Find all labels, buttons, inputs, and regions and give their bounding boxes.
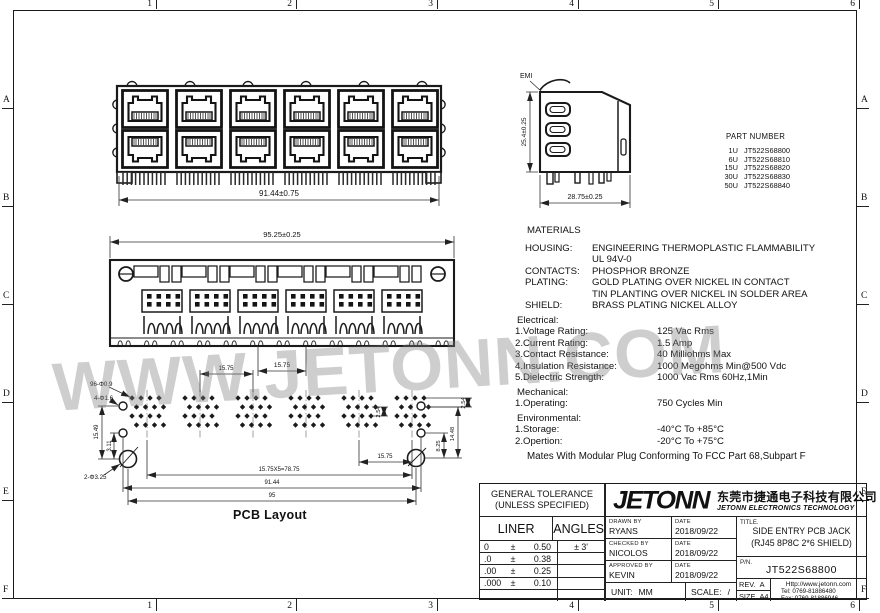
- frame-zone-number: 3: [419, 601, 433, 612]
- rj45-port: [177, 91, 222, 128]
- frame-zone-letter: E: [3, 487, 13, 498]
- spec-row: 1.Storage: -40°C To +85°C: [510, 424, 870, 436]
- scale-value: /: [728, 587, 730, 597]
- angle-tolerance-value: [557, 553, 604, 564]
- spec-label: SHIELD:: [525, 300, 592, 312]
- pcb-dim-14-48: 14.48: [450, 427, 456, 442]
- company-tel: Tel: 0769-81886480: [771, 588, 866, 595]
- frame-zone-number: 6: [841, 601, 855, 612]
- part-number-cell: P/N. JT522S68800: [736, 557, 866, 579]
- pcb-holes-mid-label: 4-Φ1.6: [94, 395, 114, 402]
- tolerance-row: .00 ± 0.25: [480, 564, 604, 576]
- spec-value: 750 Cycles Min: [657, 398, 723, 410]
- signoff-row: DRAWN BY RYANS DATE 2018/09/22: [606, 517, 736, 539]
- company-name-english: JETONN ELECTRONICS TECHNOLOGY: [717, 505, 877, 512]
- tolerance-rows: 0 ± 0.50 ± 3' .0 ± 0.38 .00 ± 0.25: [480, 540, 605, 601]
- part-number-value: JT522S68840: [744, 182, 790, 191]
- signoff-date-cell: DATE 2018/09/22: [672, 539, 736, 560]
- mates-note: Mates With Modular Plug Conforming To FC…: [510, 451, 870, 463]
- tolerance-value: 0.10: [520, 578, 557, 588]
- spec-row: UL 94V-0: [510, 254, 870, 266]
- revision-cell: REV. A: [736, 579, 770, 590]
- frame-zone-number: 6: [841, 0, 855, 10]
- pcb-dim-15-75: 15.75: [377, 454, 393, 460]
- spec-row: Electrical:: [510, 315, 870, 327]
- spec-label: [525, 254, 592, 266]
- plus-minus-symbol: ±: [506, 566, 520, 576]
- pcb-holes-small-label: 96-Φ0.9: [90, 381, 113, 388]
- tolerance-digits: .00: [480, 566, 506, 576]
- rj45-port: [231, 91, 276, 128]
- size-cell: SIZE A4: [736, 590, 770, 601]
- rj45-port: [339, 131, 384, 168]
- tolerance-value: 0.25: [520, 566, 557, 576]
- pcb-hole-dots: [129, 395, 431, 427]
- spec-row: 1.Operating: 750 Cycles Min: [510, 398, 870, 410]
- materials-spec-block: MATERIALS HOUSING: ENGINEERING THERMOPLA…: [510, 225, 870, 463]
- liner-header: LINER: [480, 517, 553, 540]
- signoff-name: KEVIN: [609, 570, 668, 580]
- pcb-layout-drawing: 96-Φ0.9 4-Φ1.6 2-Φ3.25 15.49 3.11 2.54 2…: [76, 346, 494, 532]
- drawing-sheet: 123456 123456 ABCDEF ABCDEF: [0, 0, 880, 613]
- spec-label: 2.Opertion:: [515, 436, 657, 448]
- tolerance-header: GENERAL TOLERANCE (UNLESS SPECIFIED): [480, 484, 605, 517]
- pcb-dim-2-54-mid: 2.54: [376, 406, 382, 418]
- frame-zone-letter: A: [861, 95, 871, 106]
- date-label: DATE: [675, 519, 733, 525]
- tolerance-row: [480, 589, 604, 601]
- tolerance-digits: .000: [480, 578, 506, 588]
- pcb-holes-big-label: 2-Φ3.25: [84, 474, 107, 481]
- spec-label: 1.Operating:: [515, 398, 657, 410]
- spec-label: Environmental:: [517, 413, 581, 425]
- signoff-role-label: DRAWN BY: [609, 519, 668, 525]
- spec-label: PLATING:: [525, 277, 592, 289]
- rj45-port: [285, 131, 330, 168]
- angle-tolerance-value: [557, 590, 604, 601]
- rev-label: REV.: [739, 580, 756, 589]
- spec-row: TIN PLANTING OVER NICKEL IN SOLDER AREA: [510, 289, 870, 301]
- frame-zone-number: 2: [278, 0, 292, 10]
- tolerance-digits: 0: [480, 542, 506, 552]
- drawing-title-line1: SIDE ENTRY PCB JACK: [737, 526, 866, 536]
- frame-zone-number: 3: [419, 0, 433, 10]
- spec-value: 125 Vac Rms: [657, 326, 714, 338]
- title-label: TITLE.: [740, 519, 759, 526]
- spec-label: [525, 289, 592, 301]
- plating-code: 50U: [712, 182, 738, 191]
- pcb-dim-15-49: 15.49: [94, 424, 100, 440]
- signoff-name-cell: CHECKED BY NICOLOS: [606, 539, 672, 560]
- spec-label: 1.Storage:: [515, 424, 657, 436]
- frame-zone-number: 5: [700, 601, 714, 612]
- spec-row: 3.Contact Resistance: 40 Milliohms Max: [510, 349, 870, 361]
- signoff-rows: DRAWN BY RYANS DATE 2018/09/22 CHECKED B…: [605, 517, 736, 583]
- scale-cell: SCALE: /: [686, 583, 736, 601]
- company-logo-row: JETONN 东莞市捷通电子科技有限公司 JETONN ELECTRONICS …: [605, 484, 866, 517]
- spec-label: 2.Current Rating:: [515, 338, 657, 350]
- title-block: GENERAL TOLERANCE (UNLESS SPECIFIED) LIN…: [479, 483, 867, 600]
- pcb-layout-caption: PCB Layout: [233, 508, 307, 522]
- spec-value: BRASS PLATING NICKEL ALLOY: [592, 300, 738, 312]
- pcb-dim-pitch-total: 15.75X5=78.75: [259, 467, 301, 473]
- frame-zone-letter: A: [3, 95, 13, 106]
- spec-value: GOLD PLATING OVER NICKEL IN CONTACT: [592, 277, 790, 289]
- part-number-table: PART NUMBER 1U JT522S68800 6U JT522S6881…: [712, 133, 790, 191]
- pcb-dim-2-54-right: 2.54: [461, 397, 467, 409]
- plus-minus-symbol: ±: [506, 578, 520, 588]
- spec-label: 3.Contact Resistance:: [515, 349, 657, 361]
- spec-label: CONTACTS:: [525, 266, 592, 278]
- signoff-date-cell: DATE 2018/09/22: [672, 561, 736, 582]
- frame-zone-number: 4: [560, 0, 574, 10]
- signoff-date: 2018/09/22: [675, 526, 733, 536]
- part-number-row: 50U JT522S68840: [712, 182, 790, 191]
- front-width-dim-label: 91.44±0.75: [259, 189, 300, 198]
- drawing-title-line2: (RJ45 8P8C 2*6 SHIELD): [737, 538, 866, 548]
- side-view-body: [540, 80, 630, 184]
- spec-row: Environmental:: [510, 413, 870, 425]
- date-label: DATE: [675, 563, 733, 569]
- spec-row: Mechanical:: [510, 387, 870, 399]
- spec-label: MATERIALS: [527, 225, 581, 237]
- tolerance-row: .0 ± 0.38: [480, 552, 604, 564]
- spec-value: PHOSPHOR BRONZE: [592, 266, 690, 278]
- front-view-drawing: 91.44±0.75: [96, 56, 462, 220]
- signoff-date-cell: DATE 2018/09/22: [672, 517, 736, 538]
- side-height-dim-label: 25.4±0.25: [521, 117, 528, 146]
- spec-row: PLATING: GOLD PLATING OVER NICKEL IN CON…: [510, 277, 870, 289]
- rear-view-body: [110, 260, 454, 346]
- tolerance-title-line2: (UNLESS SPECIFIED): [495, 500, 589, 511]
- tolerance-row: 0 ± 0.50 ± 3': [480, 540, 604, 552]
- part-number-list: 1U JT522S68800 6U JT522S68810 15U JT522S…: [712, 147, 790, 191]
- frame-zone-letter: B: [861, 193, 871, 204]
- rj45-port: [177, 131, 222, 168]
- spec-label: Mechanical:: [517, 387, 568, 399]
- rj45-port: [123, 91, 168, 128]
- signoff-row: CHECKED BY NICOLOS DATE 2018/09/22: [606, 539, 736, 561]
- rj45-port: [231, 131, 276, 168]
- signoff-name: NICOLOS: [609, 548, 668, 558]
- frame-zone-number: 1: [138, 601, 152, 612]
- spec-row: 5.Dielectric Strength: 1000 Vac Rms 60Hz…: [510, 372, 870, 384]
- side-depth-dim-label: 28.75±0.25: [568, 194, 603, 201]
- pcb-dim-95: 95: [269, 493, 276, 499]
- spec-row: 1.Voltage Rating: 125 Vac Rms: [510, 326, 870, 338]
- emi-label: EMI: [520, 73, 533, 80]
- angle-tolerance-value: ± 3': [557, 541, 604, 552]
- frame-zone-number: 4: [560, 601, 574, 612]
- tolerance-value: 0.38: [520, 554, 557, 564]
- spec-row: MATERIALS: [510, 225, 870, 237]
- frame-zone-number: 2: [278, 601, 292, 612]
- spec-label: HOUSING:: [525, 243, 592, 255]
- spec-value: 40 Milliohms Max: [657, 349, 731, 361]
- company-name-chinese: 东莞市捷通电子科技有限公司: [717, 488, 877, 505]
- pn-value: JT522S68800: [737, 564, 866, 576]
- spec-row: 2.Current Rating: 1.5 Amp: [510, 338, 870, 350]
- frame-zone-letter: F: [3, 585, 13, 596]
- tolerance-title-line1: GENERAL TOLERANCE: [491, 489, 593, 500]
- tolerance-value: 0.50: [520, 542, 557, 552]
- side-view-drawing: EMI 25.4±0.25 28.75±0.25: [490, 53, 702, 221]
- spec-row: 2.Opertion: -20°C To +75°C: [510, 436, 870, 448]
- spec-label: 1.Voltage Rating:: [515, 326, 657, 338]
- signoff-role-label: CHECKED BY: [609, 541, 668, 547]
- spec-value: 1000 Vac Rms 60Hz,1Min: [657, 372, 768, 384]
- contact-cell: Http://www.jetonn.com Tel: 0769-81886480…: [770, 579, 866, 601]
- signoff-name: RYANS: [609, 526, 668, 536]
- spec-row: CONTACTS: PHOSPHOR BRONZE: [510, 266, 870, 278]
- unit-cell: UNIT: MM: [606, 583, 686, 601]
- pcb-dim-8-25: 8.25: [436, 440, 442, 451]
- angle-tolerance-value: [557, 578, 604, 589]
- spec-row: HOUSING: ENGINEERING THERMOPLASTIC FLAMM…: [510, 243, 870, 255]
- pcb-dim-3-11: 3.11: [107, 440, 113, 452]
- spec-value: 1000 Megohms Min@500 Vdc: [657, 361, 786, 373]
- tolerance-digits: .0: [480, 554, 506, 564]
- plus-minus-symbol: ±: [506, 542, 520, 552]
- spec-value: UL 94V-0: [592, 254, 632, 266]
- spec-row: 4.Insulation Resistance: 1000 Megohms Mi…: [510, 361, 870, 373]
- spec-label: Electrical:: [517, 315, 559, 327]
- signoff-date: 2018/09/22: [675, 548, 733, 558]
- signoff-date: 2018/09/22: [675, 570, 733, 580]
- frame-zone-letter: B: [3, 193, 13, 204]
- spec-value: ENGINEERING THERMOPLASTIC FLAMMABILITY: [592, 243, 815, 255]
- spec-label: 4.Insulation Resistance:: [515, 361, 657, 373]
- rj45-port: [123, 131, 168, 168]
- spec-label: 5.Dielectric Strength:: [515, 372, 657, 384]
- company-url: Http://www.jetonn.com: [771, 581, 866, 588]
- rj45-port: [393, 131, 438, 168]
- spec-row: SHIELD: BRASS PLATING NICKEL ALLOY: [510, 300, 870, 312]
- frame-zone-letter: C: [3, 291, 13, 302]
- size-value: A4: [759, 592, 768, 601]
- front-view-solder-pins: [123, 172, 435, 185]
- rev-value: A: [760, 580, 765, 589]
- signoff-row: APPROVED BY KEVIN DATE 2018/09/22: [606, 561, 736, 583]
- pcb-dimension-lines: [98, 370, 472, 505]
- frame-zone-letter: D: [3, 389, 13, 400]
- rj45-port: [285, 91, 330, 128]
- jetonn-logo: JETONN: [613, 485, 709, 515]
- drawing-title-cell: TITLE. SIDE ENTRY PCB JACK (RJ45 8P8C 2*…: [736, 517, 866, 557]
- angle-tolerance-value: [557, 565, 604, 576]
- plus-minus-symbol: ±: [506, 554, 520, 564]
- pcb-dim-91-44: 91.44: [264, 480, 280, 486]
- spec-value: 1.5 Amp: [657, 338, 692, 350]
- part-number-title: PART NUMBER: [726, 133, 790, 142]
- date-label: DATE: [675, 541, 733, 547]
- signoff-name-cell: DRAWN BY RYANS: [606, 517, 672, 538]
- signoff-role-label: APPROVED BY: [609, 563, 668, 569]
- spec-value: -20°C To +75°C: [657, 436, 724, 448]
- spec-rows: MATERIALS HOUSING: ENGINEERING THERMOPLA…: [510, 225, 870, 447]
- unit-value: MM: [638, 587, 652, 597]
- angles-header: ANGLES: [553, 517, 604, 540]
- rj45-port: [339, 91, 384, 128]
- company-name-block: 东莞市捷通电子科技有限公司 JETONN ELECTRONICS TECHNOL…: [717, 488, 877, 512]
- rear-width-dim-label: 95.25±0.25: [263, 230, 300, 239]
- company-fax: Fax: 0769-81886946: [771, 595, 866, 602]
- frame-zone-number: 5: [700, 0, 714, 10]
- scale-label: SCALE:: [691, 587, 722, 597]
- unit-label: UNIT:: [611, 587, 632, 597]
- signoff-name-cell: APPROVED BY KEVIN: [606, 561, 672, 582]
- rear-width-dimension: [110, 236, 454, 258]
- spec-value: -40°C To +85°C: [657, 424, 724, 436]
- tolerance-row: .000 ± 0.10: [480, 577, 604, 589]
- pcb-dim-pitch-top: 15.75: [218, 366, 234, 372]
- rj45-port: [393, 91, 438, 128]
- frame-zone-number: 1: [138, 0, 152, 10]
- tolerance-column-headers: LINER ANGLES: [480, 517, 605, 540]
- size-label: SIZE: [739, 592, 755, 601]
- unit-scale-row: UNIT: MM SCALE: /: [605, 583, 736, 601]
- spec-value: TIN PLANTING OVER NICKEL IN SOLDER AREA: [592, 289, 808, 301]
